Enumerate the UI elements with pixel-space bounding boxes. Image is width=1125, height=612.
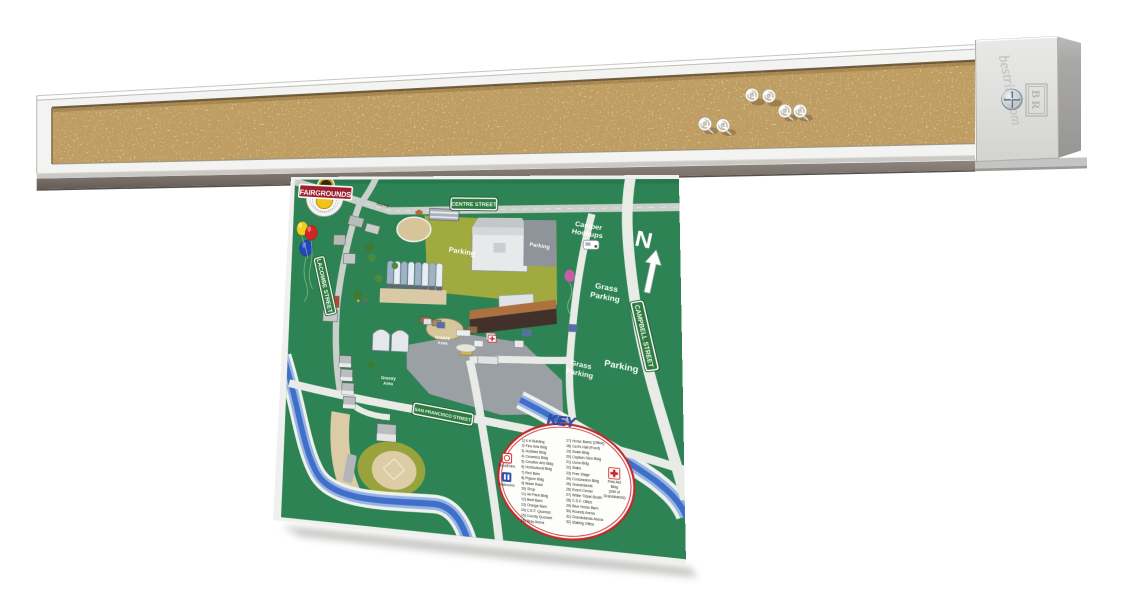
svg-text:R: R: [1029, 101, 1043, 110]
svg-text:B: B: [1029, 90, 1043, 98]
